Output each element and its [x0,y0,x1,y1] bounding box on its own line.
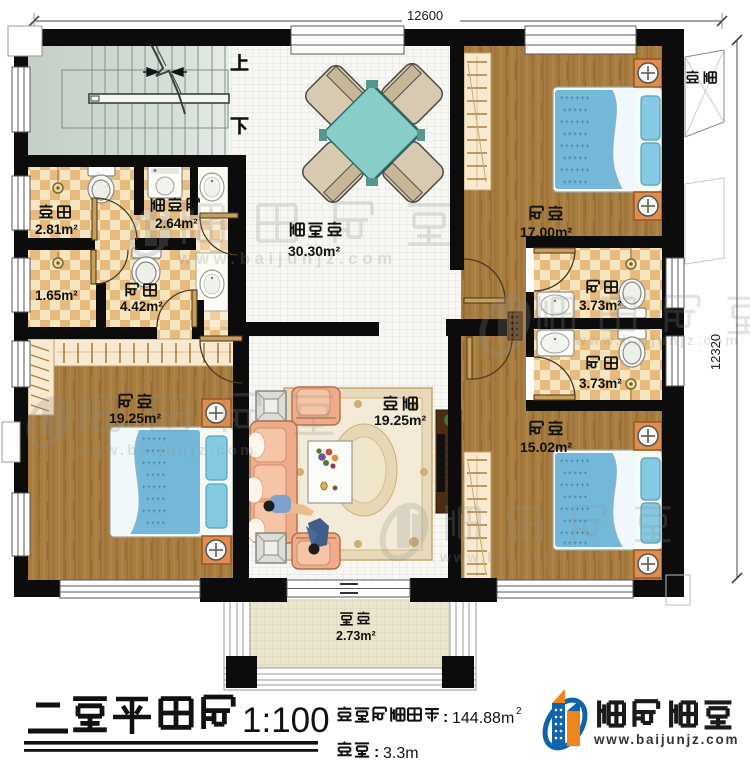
svg-text:2.73m²: 2.73m² [336,629,376,643]
svg-text:+ + + +: + + + + [146,473,166,479]
svg-text:+ + + +: + + + + [146,521,166,527]
svg-text:+ + + + +: + + + + + [142,485,167,491]
svg-text:+ + + + + +: + + + + + + [560,120,590,126]
svg-text:+ + + + +: + + + + + [142,509,167,515]
svg-text:+ + + + +: + + + + + [563,180,588,186]
svg-text:4.42m²: 4.42m² [120,299,163,314]
svg-text:+ + + + +: + + + + + [563,541,588,547]
svg-text:www.baijunjz.com: www.baijunjz.com [439,549,606,565]
svg-text:1:100: 1:100 [242,701,330,740]
svg-text:www.baijunjz.com: www.baijunjz.com [75,442,257,459]
svg-text:+ + + + + +: + + + + + + [560,168,590,174]
svg-text:144.88m: 144.88m [452,710,514,727]
svg-text:2.81m²: 2.81m² [35,222,78,237]
svg-text::: : [374,744,379,761]
svg-text:12600: 12600 [407,8,443,23]
svg-text:17.00m²: 17.00m² [520,224,572,240]
svg-text:2: 2 [516,706,522,717]
svg-text:+ + + + +: + + + + + [142,461,167,467]
svg-text:19.25m²: 19.25m² [374,412,426,428]
svg-text:+ + + +: + + + + [146,497,166,503]
svg-text:3.73m²: 3.73m² [579,298,622,313]
svg-text:12320: 12320 [708,334,723,370]
svg-text:1.65m²: 1.65m² [35,288,78,303]
svg-text:2.64m²: 2.64m² [155,216,198,231]
svg-text:+ + + + + +: + + + + + + [560,96,590,102]
svg-text:+ + + + + +: + + + + + + [560,459,590,465]
svg-text:+ + + + + +: + + + + + + [560,144,590,150]
svg-text:+ + + + +: + + + + + [563,132,588,138]
svg-text:+ + + + + +: + + + + + + [560,483,590,489]
svg-text:+ + + + +: + + + + + [563,495,588,501]
svg-text:+ + + + +: + + + + + [563,156,588,162]
svg-text:3.3m: 3.3m [383,745,419,762]
svg-text:3.73m²: 3.73m² [579,376,622,391]
svg-text:30.30m²: 30.30m² [288,243,340,259]
svg-text:19.25m²: 19.25m² [109,410,161,426]
svg-text:www.baijunjz.com: www.baijunjz.com [177,249,397,268]
svg-text::: : [443,709,448,726]
svg-text:15.02m²: 15.02m² [520,439,572,455]
svg-text:www.baijunjz.com: www.baijunjz.com [593,732,739,747]
svg-text:+ + + + +: + + + + + [563,108,588,114]
svg-text:+ + + + +: + + + + + [563,471,588,477]
